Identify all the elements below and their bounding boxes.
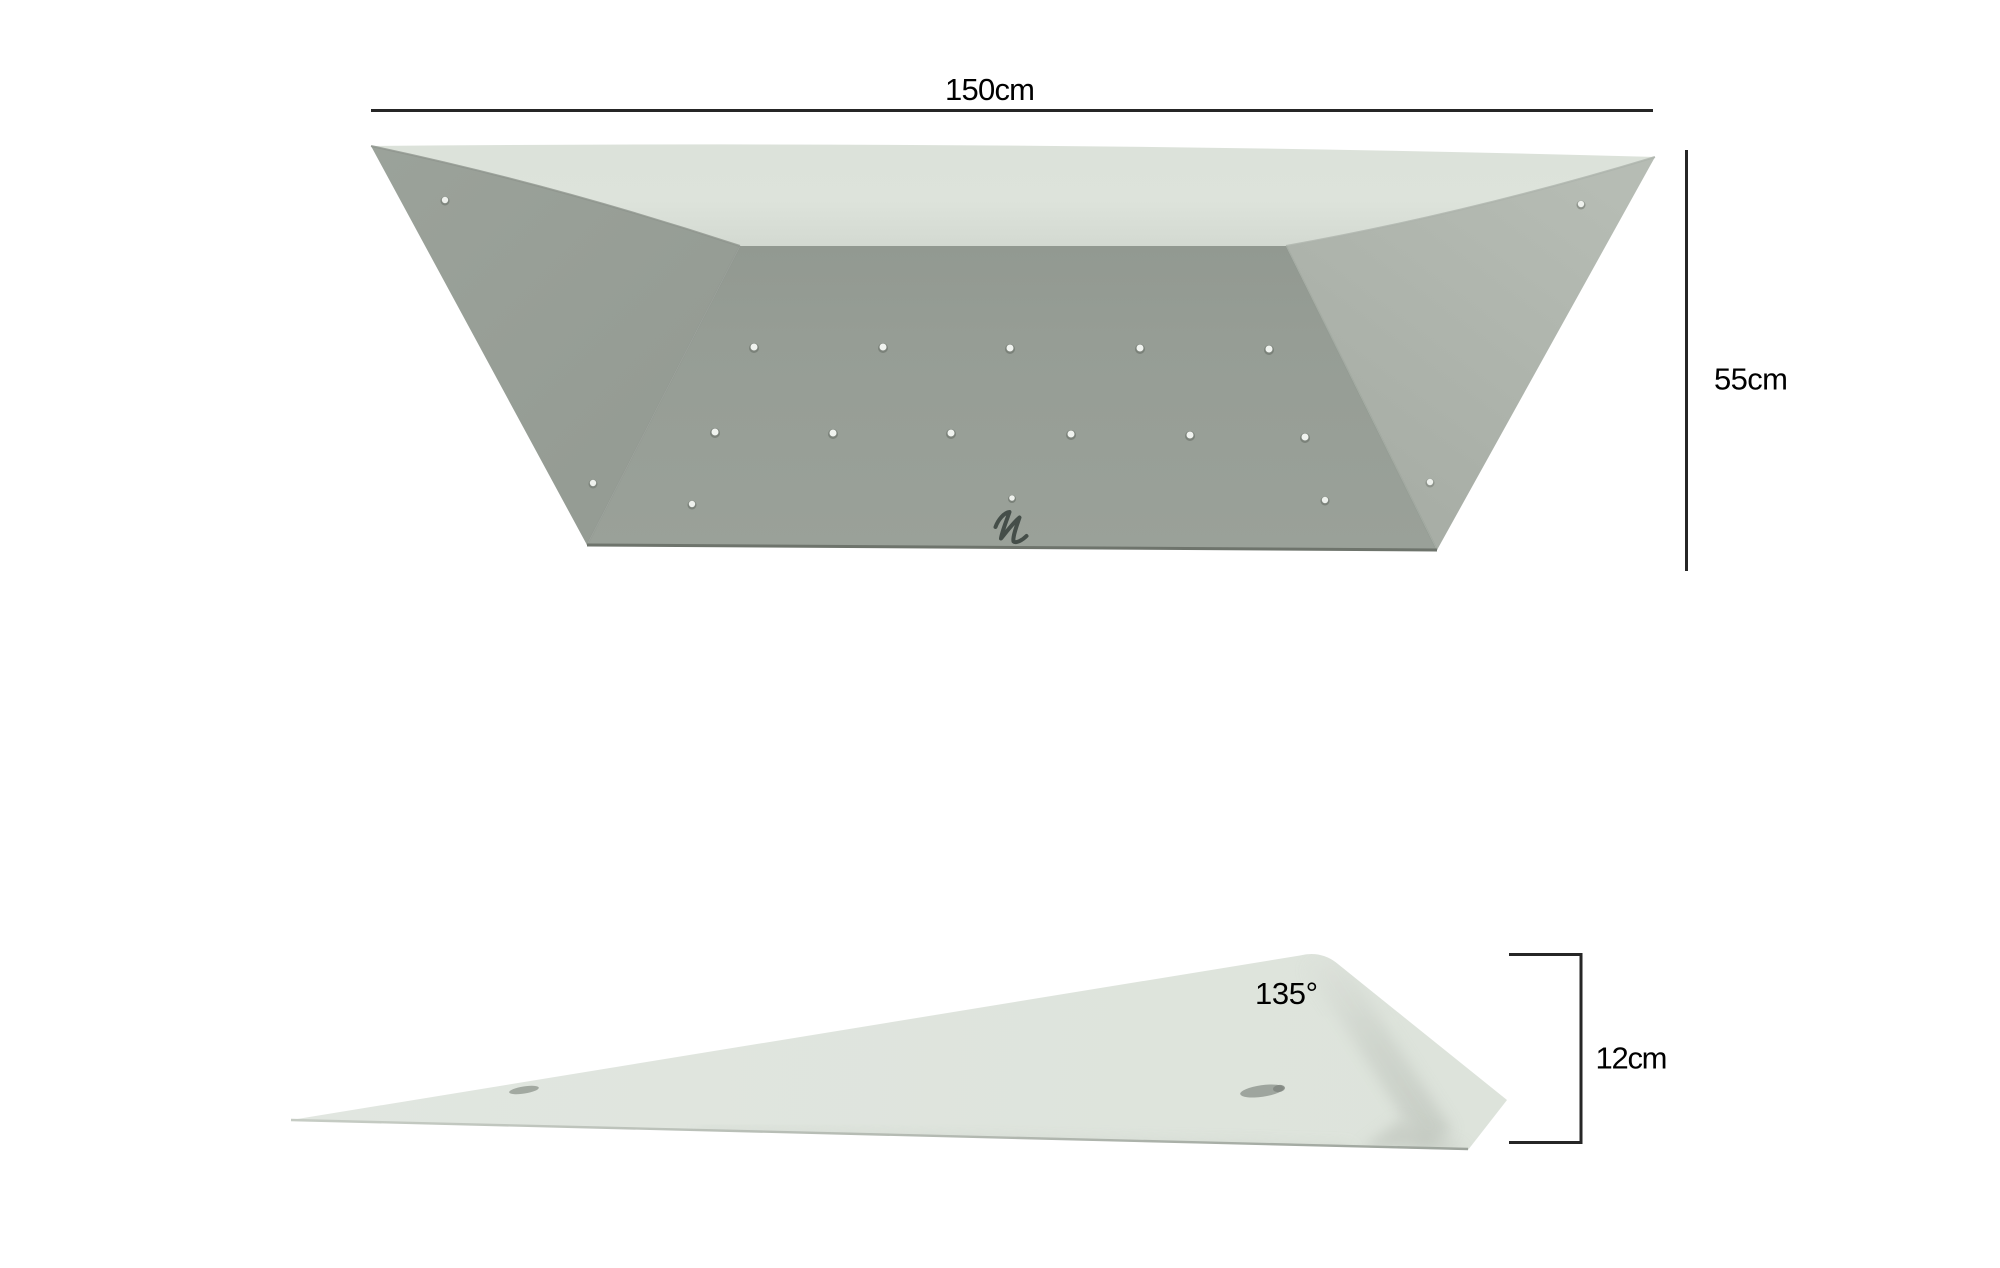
svg-text:135°: 135° bbox=[1255, 976, 1318, 1011]
svg-text:55cm: 55cm bbox=[1714, 362, 1788, 397]
svg-text:12cm: 12cm bbox=[1596, 1041, 1668, 1076]
svg-text:150cm: 150cm bbox=[945, 72, 1035, 107]
